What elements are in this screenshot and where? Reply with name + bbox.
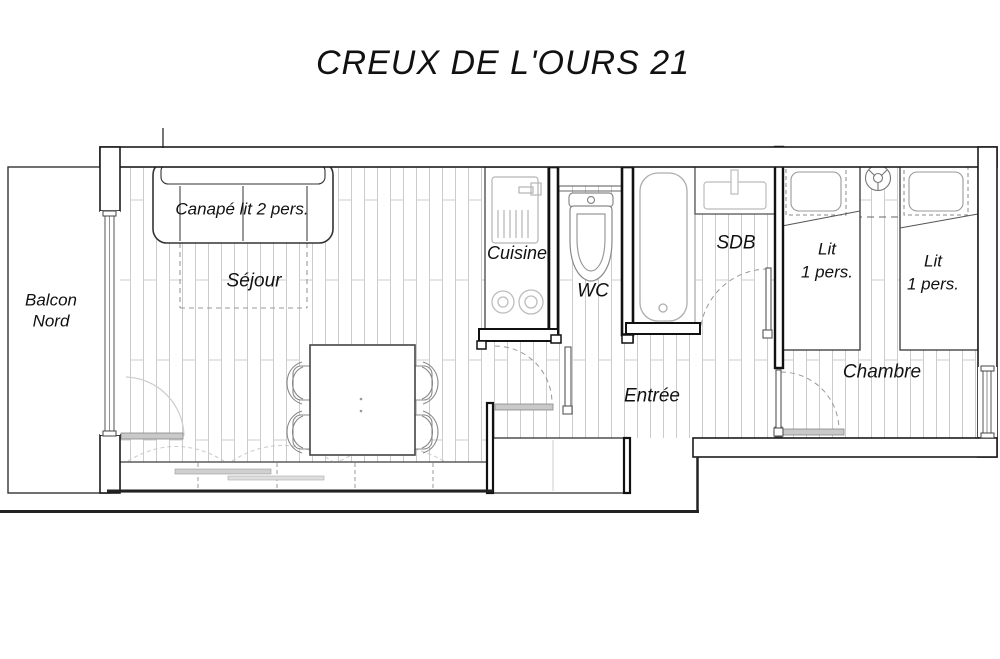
room-label-balcony-line2: Nord xyxy=(33,313,70,330)
wall-west-upper xyxy=(100,147,120,211)
wall-wc-sdb xyxy=(622,167,633,335)
wall-kitchen-bottom xyxy=(479,329,558,341)
room-label-balcony-line1: Balcon xyxy=(25,292,77,309)
bed-left-label-line1: Lit xyxy=(818,241,836,258)
wall-tub-bottom xyxy=(626,323,700,334)
dining-table xyxy=(310,345,415,455)
room-label-kitchen: Cuisine xyxy=(487,244,547,262)
room-label-hall: Entrée xyxy=(624,387,680,406)
wall-kitchen-wc xyxy=(549,167,558,340)
bed-left-label-line2: 1 pers. xyxy=(801,264,853,281)
bed-right-label-line2: 1 pers. xyxy=(907,276,959,293)
bedroom-door-leaf xyxy=(776,370,781,430)
floor-plan-page: CREUX DE L'OURS 21 Balcon Nord Séjour Ca… xyxy=(0,0,1000,659)
room-label-wc: WC xyxy=(577,282,609,301)
wall-sdb-bedroom xyxy=(775,147,783,368)
sliding-window-leaf xyxy=(228,476,324,480)
wall-north xyxy=(100,147,997,167)
sofa-label: Canapé lit 2 pers. xyxy=(175,201,308,218)
bed-right-label-line1: Lit xyxy=(924,253,942,270)
balcony-window xyxy=(100,211,120,436)
room-label-bathroom: SDB xyxy=(716,234,755,253)
post-entrance-left xyxy=(487,403,493,493)
sliding-window-leaf xyxy=(175,469,271,474)
toilet xyxy=(569,193,613,281)
bathtub xyxy=(633,164,695,332)
entrance-door-leaf xyxy=(495,404,553,410)
plan-title: CREUX DE L'OURS 21 xyxy=(316,46,690,80)
washbasin xyxy=(695,166,775,214)
post-entrance-right xyxy=(624,438,630,493)
wall-south-bedroom xyxy=(693,438,997,457)
floor-plan-drawing xyxy=(0,0,1000,659)
wall-west-lower xyxy=(100,435,120,493)
balcony-door-leaf xyxy=(121,433,183,439)
bedside-stool xyxy=(866,166,891,191)
east-window xyxy=(978,366,997,438)
room-label-bedroom: Chambre xyxy=(843,363,921,382)
room-label-living: Séjour xyxy=(227,272,282,291)
